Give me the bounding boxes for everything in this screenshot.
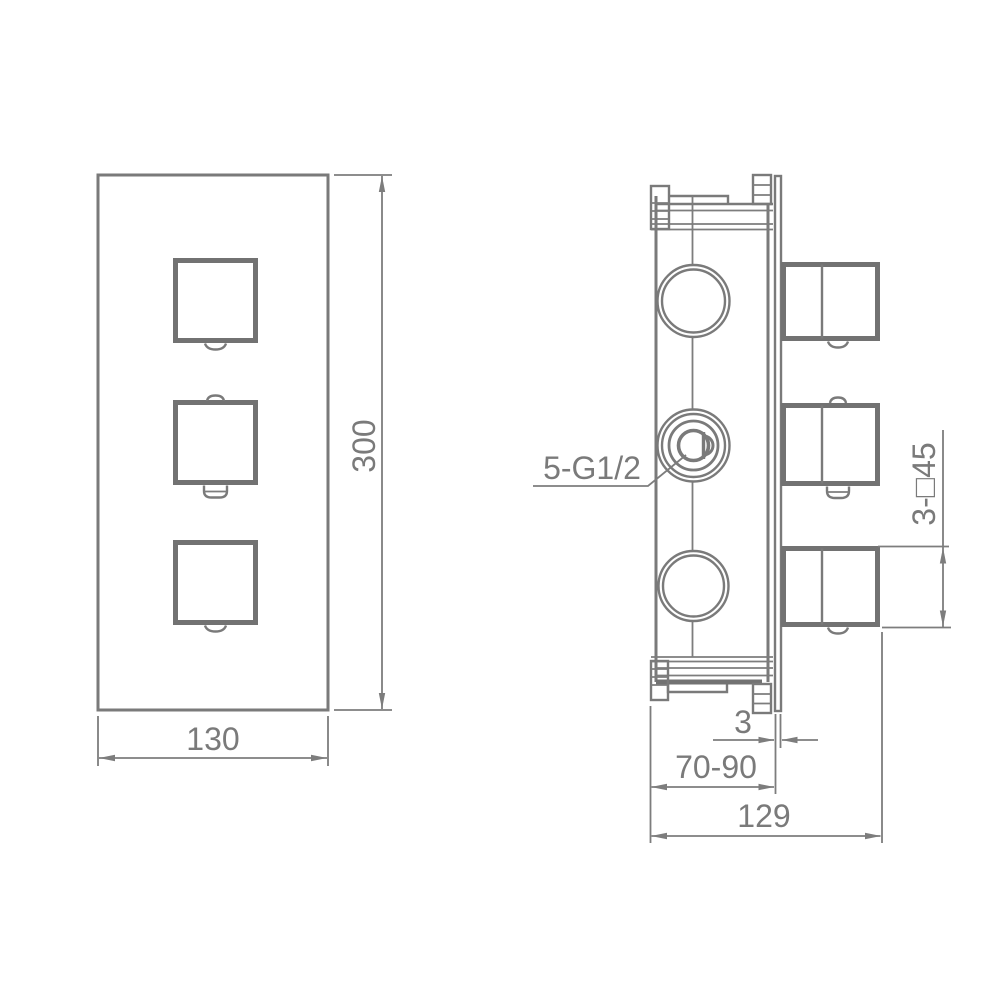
- knob-tab: [828, 342, 848, 348]
- front-knob-bottom: [176, 543, 256, 623]
- port-middle-threaded: [658, 410, 730, 482]
- mount-bracket-top-left: [651, 186, 669, 229]
- front-knob-top-tab: [205, 344, 226, 350]
- arrowhead-up: [379, 176, 385, 192]
- arrowhead-down: [940, 611, 946, 627]
- front-plate: [98, 175, 328, 710]
- port-outer-circle: [659, 551, 729, 621]
- side-knob-bottom: [784, 549, 878, 634]
- dim-text-70-90: 70-90: [675, 749, 757, 785]
- mount-bracket-bottom-right: [753, 684, 771, 713]
- arrowhead-up: [940, 548, 946, 564]
- mount-bracket-top-right: [753, 175, 771, 204]
- knob-body: [784, 265, 878, 339]
- arrowhead-left: [651, 784, 667, 790]
- knob-body: [784, 549, 878, 625]
- dim-text-130: 130: [186, 721, 239, 757]
- side-view: 5-G1/2 3-□45 3 70-90: [533, 175, 951, 843]
- arrowhead-right: [311, 755, 327, 761]
- front-knob-top: [176, 261, 256, 341]
- arrowhead-right: [759, 784, 775, 790]
- front-knob-middle: [176, 403, 256, 483]
- port-top: [658, 265, 730, 337]
- port-inner-circle: [663, 556, 724, 617]
- valve-dimension-drawing: 130 300: [0, 0, 1000, 1000]
- knob-tab: [828, 628, 848, 634]
- dim-text-129: 129: [737, 798, 790, 834]
- arrowhead-left: [99, 755, 115, 761]
- wall-plate: [775, 176, 781, 711]
- side-knob-top: [784, 265, 878, 348]
- front-view: 130 300: [98, 175, 392, 766]
- technical-drawing-canvas: 130 300: [0, 0, 1000, 1000]
- arrowhead-left: [782, 737, 798, 743]
- arrowhead-right: [865, 833, 881, 839]
- front-knob-bottom-tab: [205, 626, 226, 632]
- dim-front-height: 300: [334, 175, 392, 710]
- dim-front-width: 130: [98, 716, 328, 766]
- dim-text-300: 300: [346, 419, 382, 472]
- dim-text-3-45: 3-□45: [906, 442, 942, 525]
- body-bottom-step: [668, 685, 727, 693]
- port-outer-circle: [658, 265, 730, 337]
- dim-knob-square: 3-□45: [878, 430, 951, 628]
- arrowhead-left: [651, 833, 667, 839]
- arrowhead-down: [379, 693, 385, 709]
- knob-body: [784, 406, 878, 484]
- port-inner-circle: [662, 270, 725, 333]
- knob-top-tab: [830, 398, 846, 404]
- side-knob-middle: [784, 398, 878, 499]
- arrowhead-right: [759, 737, 775, 743]
- port-bottom: [659, 551, 729, 621]
- dim-text-3: 3: [734, 704, 752, 740]
- label-text-5-G1-2: 5-G1/2: [543, 450, 641, 486]
